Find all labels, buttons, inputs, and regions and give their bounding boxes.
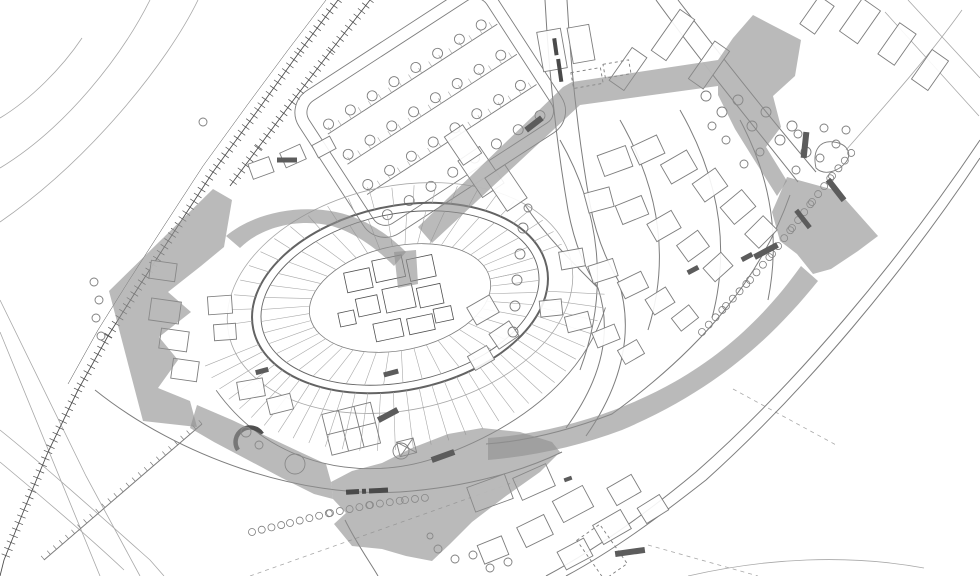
building-footprint xyxy=(207,295,232,315)
building-footprint xyxy=(237,378,266,400)
building-footprint xyxy=(213,323,236,340)
site-plan-drawing xyxy=(0,0,980,576)
building-footprint xyxy=(559,248,586,270)
surface-marker xyxy=(277,158,297,163)
label-mark xyxy=(362,489,366,494)
site-plan-canvas xyxy=(0,0,980,576)
east-gate-paving xyxy=(394,250,418,288)
label-mark xyxy=(346,489,359,495)
label-mark xyxy=(369,488,388,494)
building-footprint xyxy=(539,299,563,317)
